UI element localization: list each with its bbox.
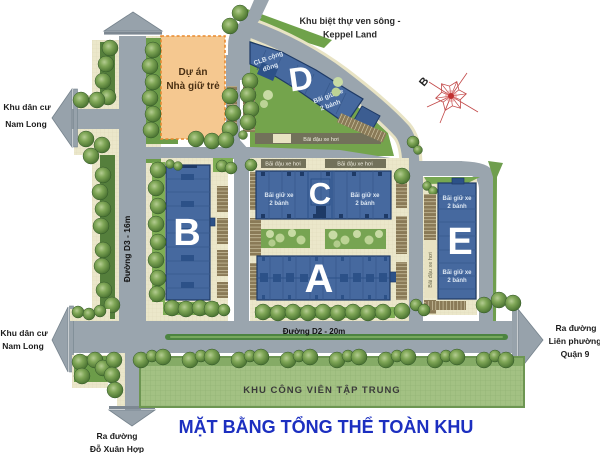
svg-text:Nam Long: Nam Long bbox=[5, 119, 47, 129]
svg-text:Bãi đậu xe hơi: Bãi đậu xe hơi bbox=[428, 252, 434, 287]
svg-text:Bãi giữ xe: Bãi giữ xe bbox=[442, 196, 472, 202]
svg-text:Nhà giữ trẻ: Nhà giữ trẻ bbox=[166, 81, 220, 92]
svg-text:E: E bbox=[447, 221, 472, 263]
svg-text:A: A bbox=[305, 257, 334, 301]
svg-text:Bãi đậu xe hơi: Bãi đậu xe hơi bbox=[337, 162, 372, 168]
svg-text:KHU CÔNG VIÊN TẬP TRUNG: KHU CÔNG VIÊN TẬP TRUNG bbox=[243, 384, 400, 396]
svg-text:Bãi đậu xe hơi: Bãi đậu xe hơi bbox=[265, 162, 300, 168]
svg-text:Dự án: Dự án bbox=[179, 67, 208, 78]
svg-text:Nam Long: Nam Long bbox=[2, 341, 44, 351]
svg-text:Khu biệt thự ven sông -: Khu biệt thự ven sông - bbox=[299, 16, 400, 26]
svg-text:Liên phường: Liên phường bbox=[549, 336, 600, 346]
svg-text:D: D bbox=[286, 59, 315, 99]
svg-text:MẶT BẰNG TỔNG THỂ TOÀN KHU: MẶT BẰNG TỔNG THỂ TOÀN KHU bbox=[179, 416, 474, 437]
svg-text:2 bánh: 2 bánh bbox=[269, 201, 289, 207]
svg-text:Bãi giữ xe: Bãi giữ xe bbox=[350, 193, 380, 199]
svg-text:Bãi đậu xe hơi: Bãi đậu xe hơi bbox=[303, 137, 338, 143]
svg-text:Bãi giữ xe: Bãi giữ xe bbox=[442, 270, 472, 276]
svg-text:Khu dân cư: Khu dân cư bbox=[0, 328, 48, 338]
svg-text:2 bánh: 2 bánh bbox=[355, 201, 375, 207]
svg-text:Đường D3 - 16m: Đường D3 - 16m bbox=[122, 215, 132, 282]
svg-text:B: B bbox=[173, 212, 200, 254]
svg-text:2 bánh: 2 bánh bbox=[447, 278, 467, 284]
svg-text:Đỗ Xuân Hợp: Đỗ Xuân Hợp bbox=[90, 444, 144, 453]
svg-text:Đường D2 - 20m: Đường D2 - 20m bbox=[283, 327, 346, 336]
svg-text:2 bánh: 2 bánh bbox=[447, 204, 467, 210]
svg-text:Quận 9: Quận 9 bbox=[561, 349, 590, 359]
svg-text:Khu dân cư: Khu dân cư bbox=[3, 102, 51, 112]
svg-text:Ra đường: Ra đường bbox=[555, 323, 596, 333]
svg-text:Bãi giữ xe: Bãi giữ xe bbox=[264, 193, 294, 199]
svg-text:Ra đường: Ra đường bbox=[96, 431, 137, 441]
svg-text:Keppel Land: Keppel Land bbox=[323, 30, 377, 40]
svg-text:C: C bbox=[309, 176, 331, 211]
